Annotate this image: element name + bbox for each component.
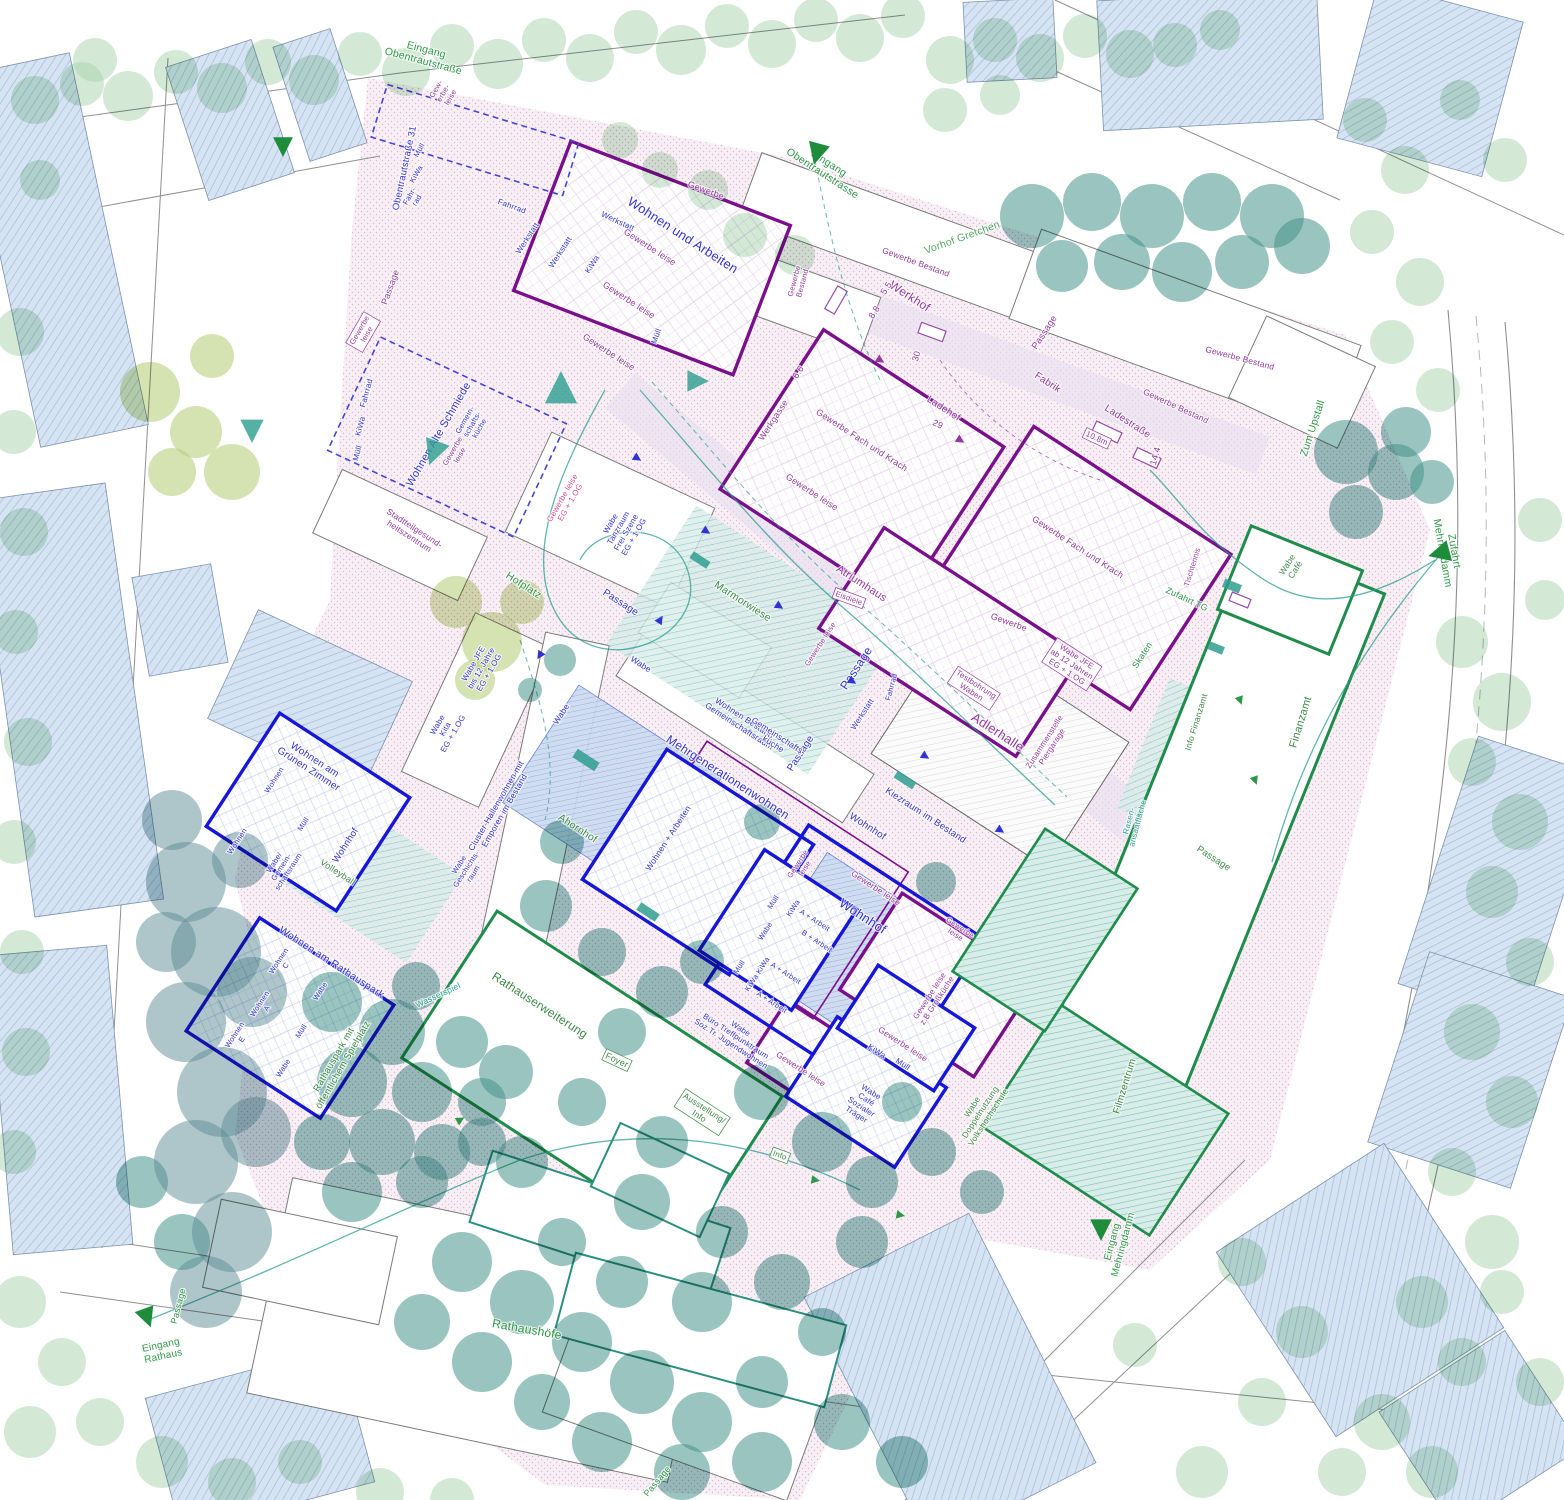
- tree: [558, 1078, 606, 1126]
- tree: [734, 1064, 790, 1120]
- tree: [1063, 14, 1107, 58]
- tree: [322, 1162, 382, 1222]
- tree: [1318, 1448, 1366, 1496]
- tree: [1465, 1215, 1519, 1269]
- tree: [38, 1338, 86, 1386]
- tree: [723, 213, 767, 257]
- tree: [0, 930, 44, 974]
- tree: [1036, 240, 1088, 292]
- tree: [392, 1062, 452, 1122]
- tree: [598, 1008, 646, 1056]
- tree: [980, 75, 1020, 115]
- tree: [1480, 1270, 1524, 1314]
- tree: [20, 160, 60, 200]
- tree: [1350, 210, 1394, 254]
- tree: [926, 36, 974, 84]
- tree: [1215, 235, 1269, 289]
- tree: [696, 1206, 748, 1258]
- tree: [197, 63, 247, 113]
- tree: [1176, 1446, 1228, 1498]
- tree: [1113, 1323, 1157, 1367]
- tree: [672, 1392, 732, 1452]
- tree: [394, 1294, 450, 1350]
- tree: [514, 1374, 570, 1430]
- tree: [518, 678, 542, 702]
- tree: [1440, 80, 1480, 120]
- tree: [148, 448, 196, 496]
- tree: [882, 1082, 922, 1122]
- tree: [923, 88, 967, 132]
- tree: [794, 0, 838, 42]
- tree: [1466, 866, 1518, 918]
- tree: [1428, 1148, 1476, 1196]
- tree: [672, 1272, 732, 1332]
- tree: [1492, 794, 1548, 850]
- tree: [578, 928, 626, 976]
- tree: [2, 1028, 50, 1076]
- tree: [602, 122, 638, 158]
- tree: [636, 966, 688, 1018]
- tree: [436, 1016, 488, 1068]
- tree: [1106, 30, 1154, 78]
- tree: [960, 1170, 1004, 1214]
- tree: [4, 1406, 56, 1458]
- tree: [1416, 368, 1460, 412]
- tree: [610, 1350, 674, 1414]
- tree: [1516, 1358, 1564, 1406]
- tree: [1473, 673, 1531, 731]
- tree: [636, 1116, 688, 1168]
- tree: [473, 39, 523, 89]
- tree: [1518, 498, 1562, 542]
- tree: [916, 862, 956, 902]
- tree: [876, 1436, 928, 1488]
- tree: [1525, 580, 1564, 620]
- tree: [908, 1128, 956, 1176]
- tree: [1329, 485, 1383, 539]
- tree: [1200, 10, 1240, 50]
- tree: [1410, 460, 1454, 504]
- tree: [1000, 184, 1064, 248]
- tree: [1396, 1276, 1448, 1328]
- tree: [1436, 616, 1488, 668]
- tree: [614, 10, 658, 54]
- tree: [1016, 34, 1064, 82]
- tree: [544, 644, 576, 676]
- tree: [142, 790, 202, 850]
- tree: [1381, 146, 1429, 194]
- tree: [245, 39, 291, 85]
- tree: [1238, 1378, 1286, 1426]
- tree: [798, 1308, 846, 1356]
- tree: [294, 1114, 350, 1170]
- tree: [814, 1394, 870, 1450]
- tree: [1274, 218, 1330, 274]
- tree: [414, 1124, 470, 1180]
- tree: [338, 32, 382, 76]
- tree: [278, 1440, 322, 1484]
- tree: [1448, 738, 1496, 786]
- tree: [1218, 1238, 1266, 1286]
- tree: [566, 34, 614, 82]
- tree: [120, 362, 180, 422]
- tree: [596, 1256, 648, 1308]
- tree: [76, 1398, 124, 1446]
- tree: [1406, 1446, 1458, 1498]
- tree: [520, 880, 572, 932]
- tree: [1153, 23, 1197, 67]
- site-plan-canvas: EingangObentrautstraßeEingangObentrautst…: [0, 0, 1564, 1500]
- tree: [705, 4, 749, 48]
- tree: [1152, 242, 1212, 302]
- tree: [1486, 1076, 1538, 1128]
- tree: [1063, 173, 1121, 231]
- tree: [0, 508, 48, 556]
- tree: [136, 1436, 188, 1488]
- tree: [190, 334, 234, 378]
- tree: [221, 1097, 291, 1167]
- building-ctx: [132, 564, 228, 676]
- tree: [614, 1174, 670, 1230]
- tree: [792, 1112, 852, 1172]
- tree: [1354, 1394, 1410, 1450]
- tree: [154, 50, 198, 94]
- tree: [479, 1045, 533, 1099]
- site-plan: EingangObentrautstraßeEingangObentrautst…: [0, 0, 1564, 1500]
- tree: [538, 1218, 586, 1266]
- tree: [73, 38, 117, 82]
- tree: [836, 1216, 888, 1268]
- tree: [1444, 1004, 1500, 1060]
- tree: [204, 444, 260, 500]
- tree: [973, 18, 1017, 62]
- tree: [1276, 1306, 1328, 1358]
- tree: [1483, 138, 1527, 182]
- tree: [522, 18, 566, 62]
- tree: [103, 71, 153, 121]
- tree: [1506, 938, 1554, 986]
- tree: [680, 940, 724, 984]
- tree: [1396, 258, 1444, 306]
- tree: [1343, 98, 1387, 142]
- tree: [1381, 407, 1431, 457]
- tree: [289, 55, 339, 105]
- tree: [656, 25, 706, 75]
- tree: [748, 20, 796, 68]
- tree: [11, 76, 59, 124]
- tree: [732, 1432, 792, 1492]
- tree: [1183, 173, 1241, 231]
- tree: [572, 1412, 632, 1472]
- tree: [836, 14, 884, 62]
- tree: [736, 1356, 788, 1408]
- tree: [1094, 234, 1150, 290]
- tree: [136, 912, 196, 972]
- tree: [452, 1332, 512, 1392]
- tree: [1370, 320, 1414, 364]
- tree: [846, 1156, 898, 1208]
- tree: [552, 1312, 612, 1372]
- tree: [642, 152, 678, 188]
- tree: [1438, 1338, 1486, 1386]
- tree: [432, 1232, 492, 1292]
- tree: [754, 1254, 810, 1310]
- tree: [4, 718, 52, 766]
